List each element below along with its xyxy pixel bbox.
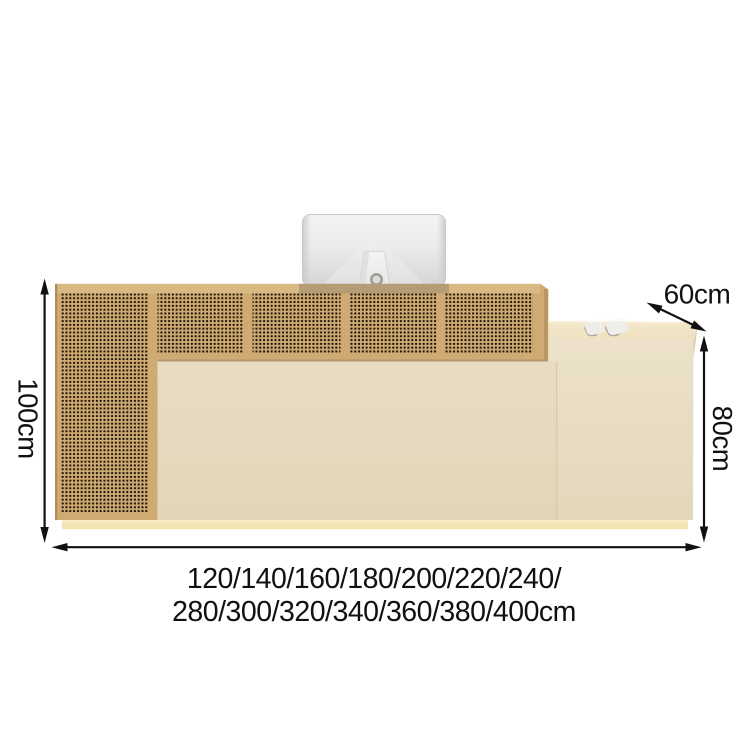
svg-text:100cm: 100cm — [13, 378, 44, 459]
svg-text:60cm: 60cm — [664, 279, 731, 310]
svg-text:80cm: 80cm — [707, 406, 738, 472]
svg-text:120/140/160/180/200/220/240/: 120/140/160/180/200/220/240/ — [187, 563, 562, 595]
svg-text:280/300/320/340/360/380/400cm: 280/300/320/340/360/380/400cm — [172, 596, 576, 628]
